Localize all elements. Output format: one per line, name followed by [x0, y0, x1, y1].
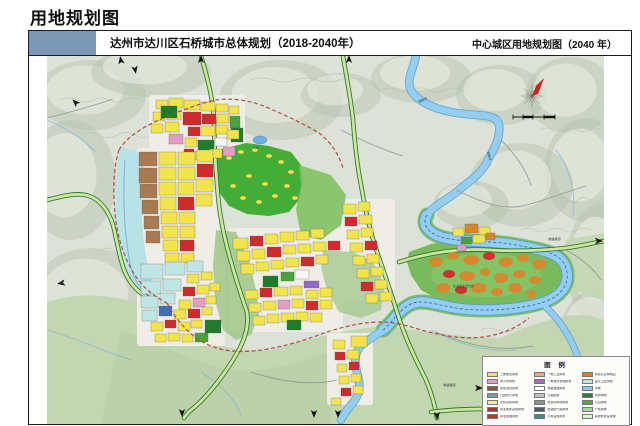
legend-label: 防护绿地 [595, 394, 607, 397]
sheet-header: 达州市达川区石桥城市总体规划（2018-2040年） 中心城区用地规划图（204… [29, 31, 631, 56]
legend-label: 广场用地 [595, 408, 607, 411]
legend-label: 预留发展用地 [547, 387, 565, 390]
legend-swatch [534, 407, 545, 413]
legend-label: 一类物流仓储用地 [547, 380, 571, 383]
map-annotation: 水库 [253, 146, 259, 150]
legend-swatch [487, 400, 498, 406]
legend-swatch [582, 393, 593, 399]
legend-label: 社会停车场用地 [547, 401, 568, 404]
legend-label: 二类居住用地 [500, 373, 518, 376]
legend-label: 医疗卫生用地 [595, 380, 613, 383]
legend-grid: 二类居住用地中小学用地商住混合用地行政办公用地文化设施用地商业服务设施用地商业金… [487, 371, 625, 420]
legend-swatch [534, 372, 545, 378]
page-title: 用地规划图 [30, 4, 120, 29]
legend-item: 二类居住用地 [487, 371, 530, 378]
legend-item: 水域 [582, 385, 625, 392]
legend-label: 行政办公用地 [500, 394, 518, 397]
legend-item: 行政办公用地 [487, 392, 530, 399]
legend-item: 中小学用地 [487, 378, 530, 385]
legend-item: 预留发展用地 [534, 385, 577, 392]
legend-item: 公路用地 [534, 392, 577, 399]
legend-swatch [487, 386, 498, 392]
header-accent-box [29, 31, 96, 55]
legend-swatch [534, 400, 545, 406]
legend-label: 文化设施用地 [500, 401, 518, 404]
legend-swatch [582, 407, 593, 413]
legend-item: 广场用地 [582, 406, 625, 413]
legend-swatch [487, 379, 498, 385]
legend-item: 文化设施用地 [487, 399, 530, 406]
map-annotation: （快速通道） [441, 383, 458, 387]
legend-label: 商住混合用地 [500, 387, 518, 390]
legend-label: 商业服务设施用地 [500, 408, 524, 411]
legend-label: 加油加气站用地 [547, 408, 568, 411]
legend-item: 特色农业种植园 [582, 371, 625, 378]
legend-item: 一类物流仓储用地 [534, 378, 577, 385]
legend-label: 特色农业种植园 [595, 373, 616, 376]
legend-label: 公路用地 [547, 394, 559, 397]
legend-title: 图 例 [487, 359, 625, 369]
map-annotation: （快速通道） [546, 237, 563, 241]
legend-swatch [582, 400, 593, 406]
legend-item: 社会停车场用地 [534, 399, 577, 406]
legend-swatch [582, 372, 593, 378]
legend-swatch [487, 393, 498, 399]
legend-label: 中小学用地 [500, 380, 515, 383]
legend-item: 加油加气站用地 [534, 406, 577, 413]
legend-item: 公园绿地 [582, 399, 625, 406]
legend-swatch [582, 379, 593, 385]
legend-swatch [487, 407, 498, 413]
header-title-left: 达州市达川区石桥城市总体规划（2018-2040年） [110, 35, 361, 51]
legend-item: 防护绿地 [582, 392, 625, 399]
legend-swatch [534, 393, 545, 399]
legend-swatch [534, 386, 545, 392]
screenshot-root: { "page": { "title": "用地规划图" }, "sheet":… [0, 0, 640, 417]
header-title-right: 中心城区用地规划图（2040 年） [472, 36, 617, 51]
legend-swatch [534, 379, 545, 385]
legend-label: 水域 [595, 387, 601, 390]
map-annotation: 生态农业观光园 [453, 283, 474, 288]
legend-item: 一类工业用地 [534, 371, 577, 378]
legend-label: 公园绿地 [595, 401, 607, 404]
legend-swatch [487, 372, 498, 378]
legend-swatch [582, 386, 593, 392]
legend-item: 商住混合用地 [487, 385, 530, 392]
legend-box: 图 例 二类居住用地中小学用地商住混合用地行政办公用地文化设施用地商业服务设施用… [482, 356, 630, 426]
legend-item: 医疗卫生用地 [582, 378, 625, 385]
legend-label: 一类工业用地 [547, 373, 565, 376]
legend-item: 商业服务设施用地 [487, 406, 530, 413]
